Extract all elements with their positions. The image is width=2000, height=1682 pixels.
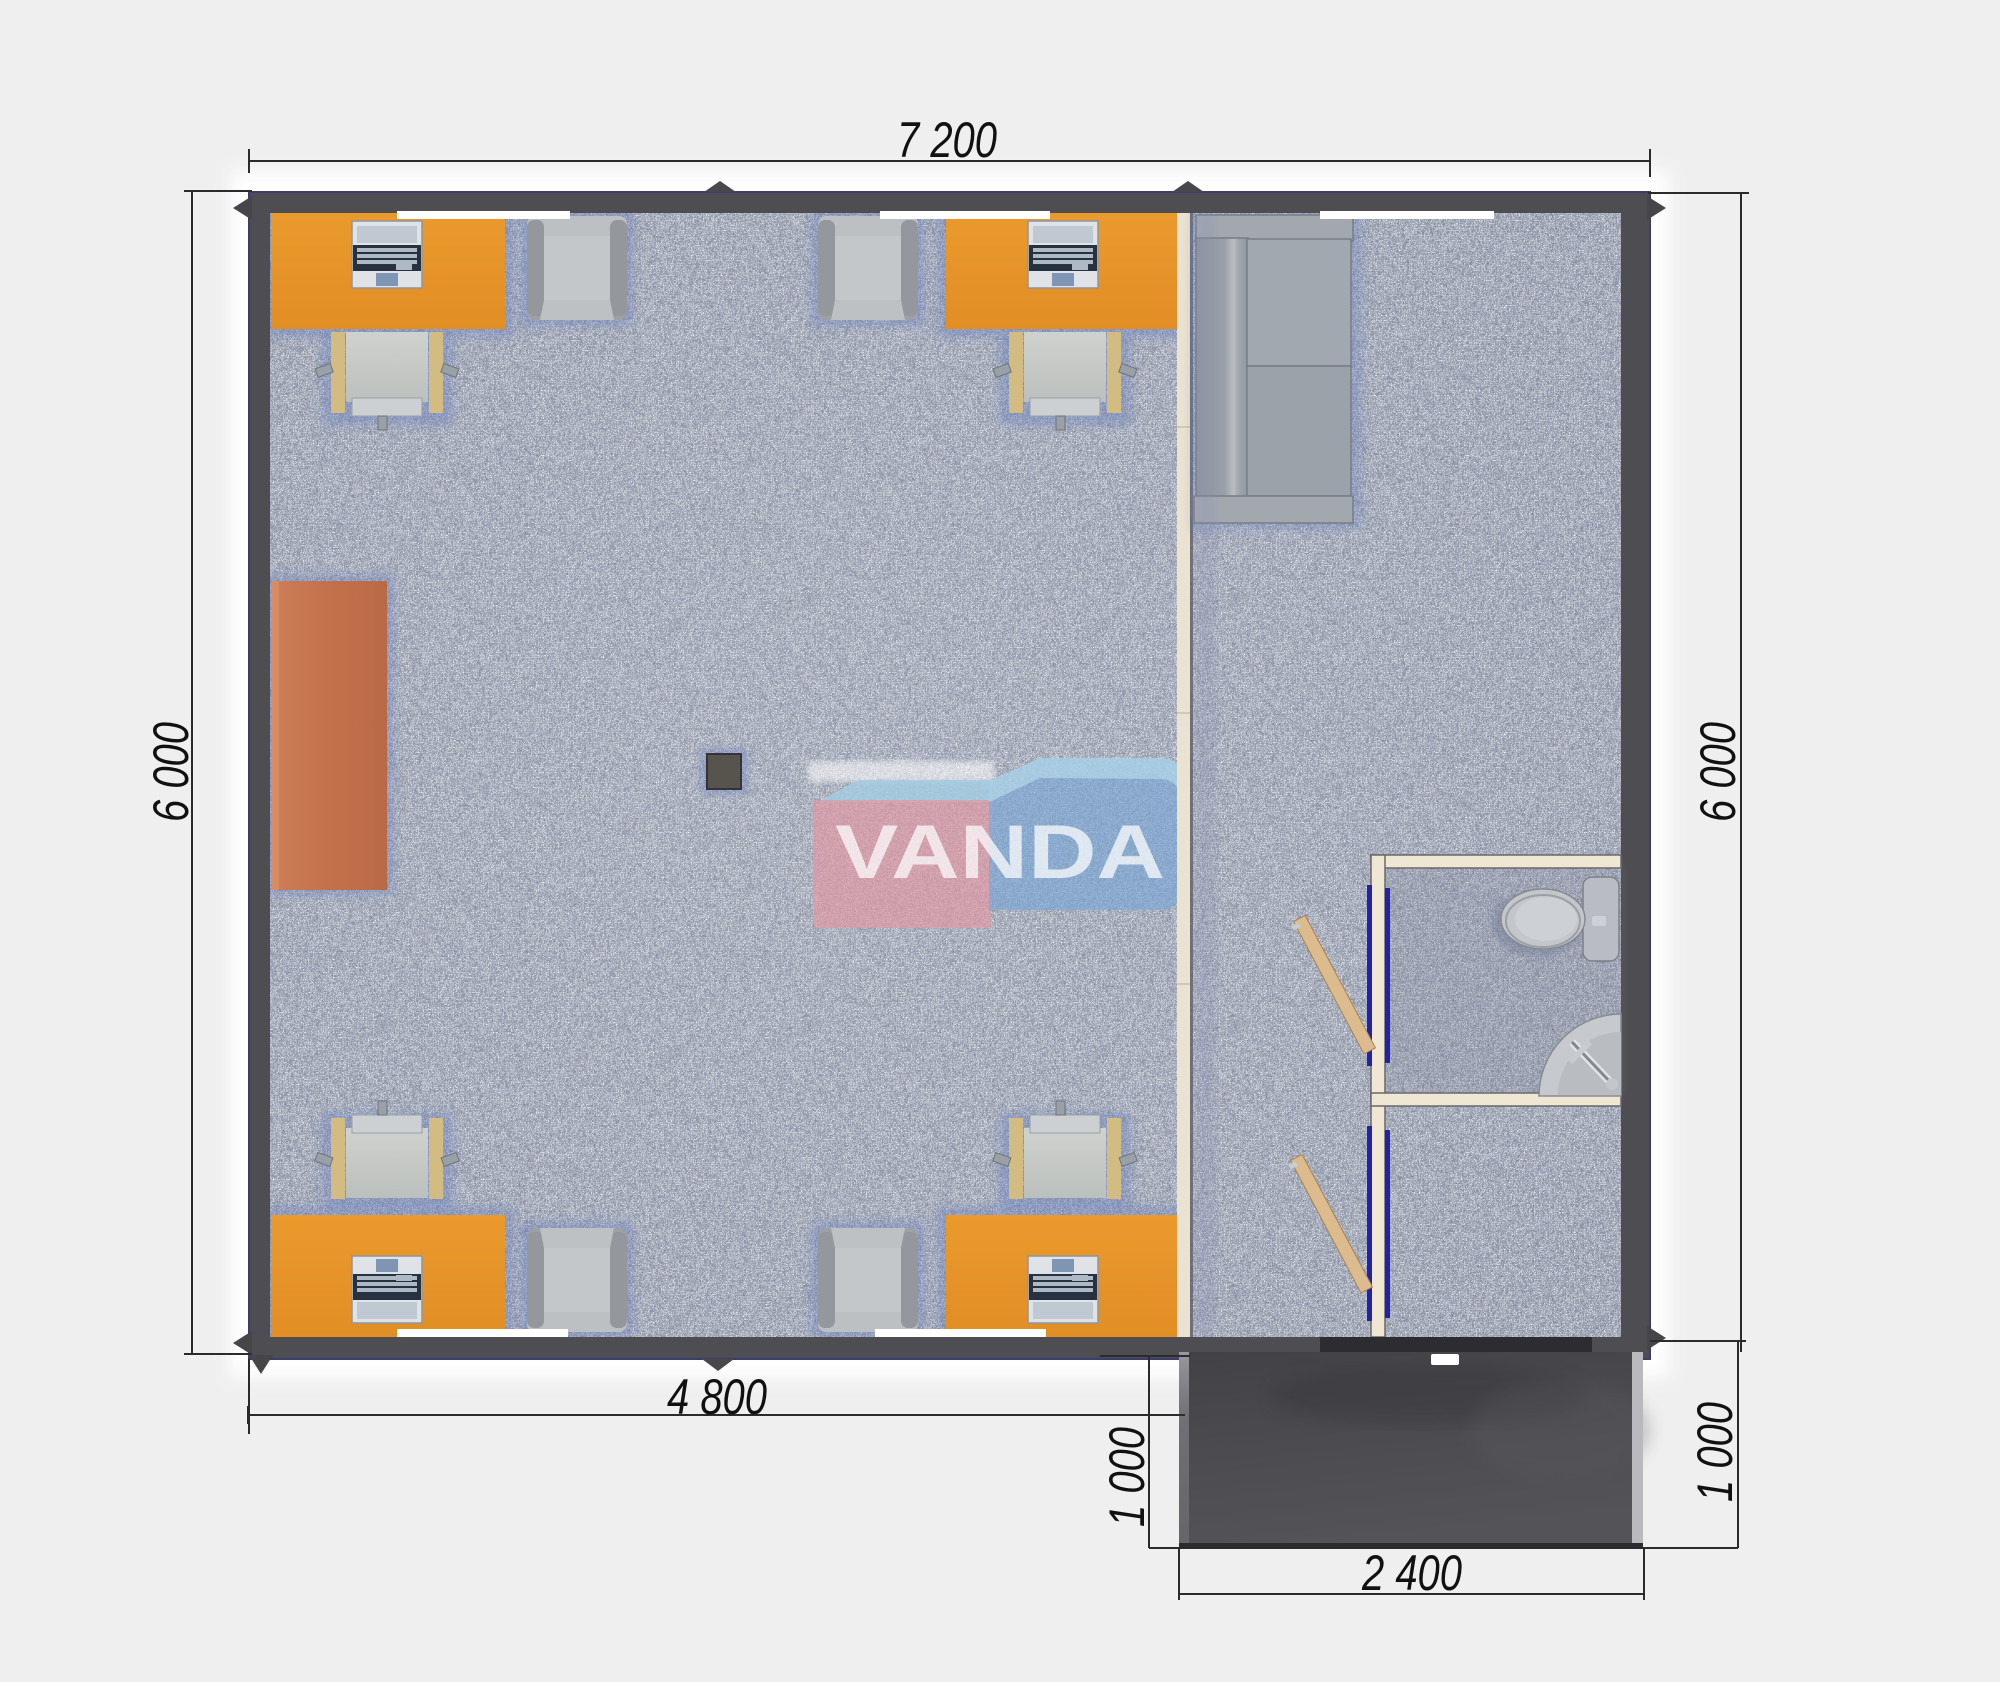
svg-text:1 000: 1 000 (1687, 1402, 1743, 1502)
svg-text:6 000: 6 000 (143, 722, 199, 822)
svg-text:1 000: 1 000 (1099, 1427, 1155, 1527)
svg-text:4 800: 4 800 (667, 1369, 767, 1425)
svg-text:6 000: 6 000 (1690, 722, 1746, 822)
svg-text:7 200: 7 200 (897, 112, 997, 168)
svg-text:2 400: 2 400 (1361, 1545, 1462, 1601)
svg-text:VANDA: VANDA (835, 810, 1165, 895)
